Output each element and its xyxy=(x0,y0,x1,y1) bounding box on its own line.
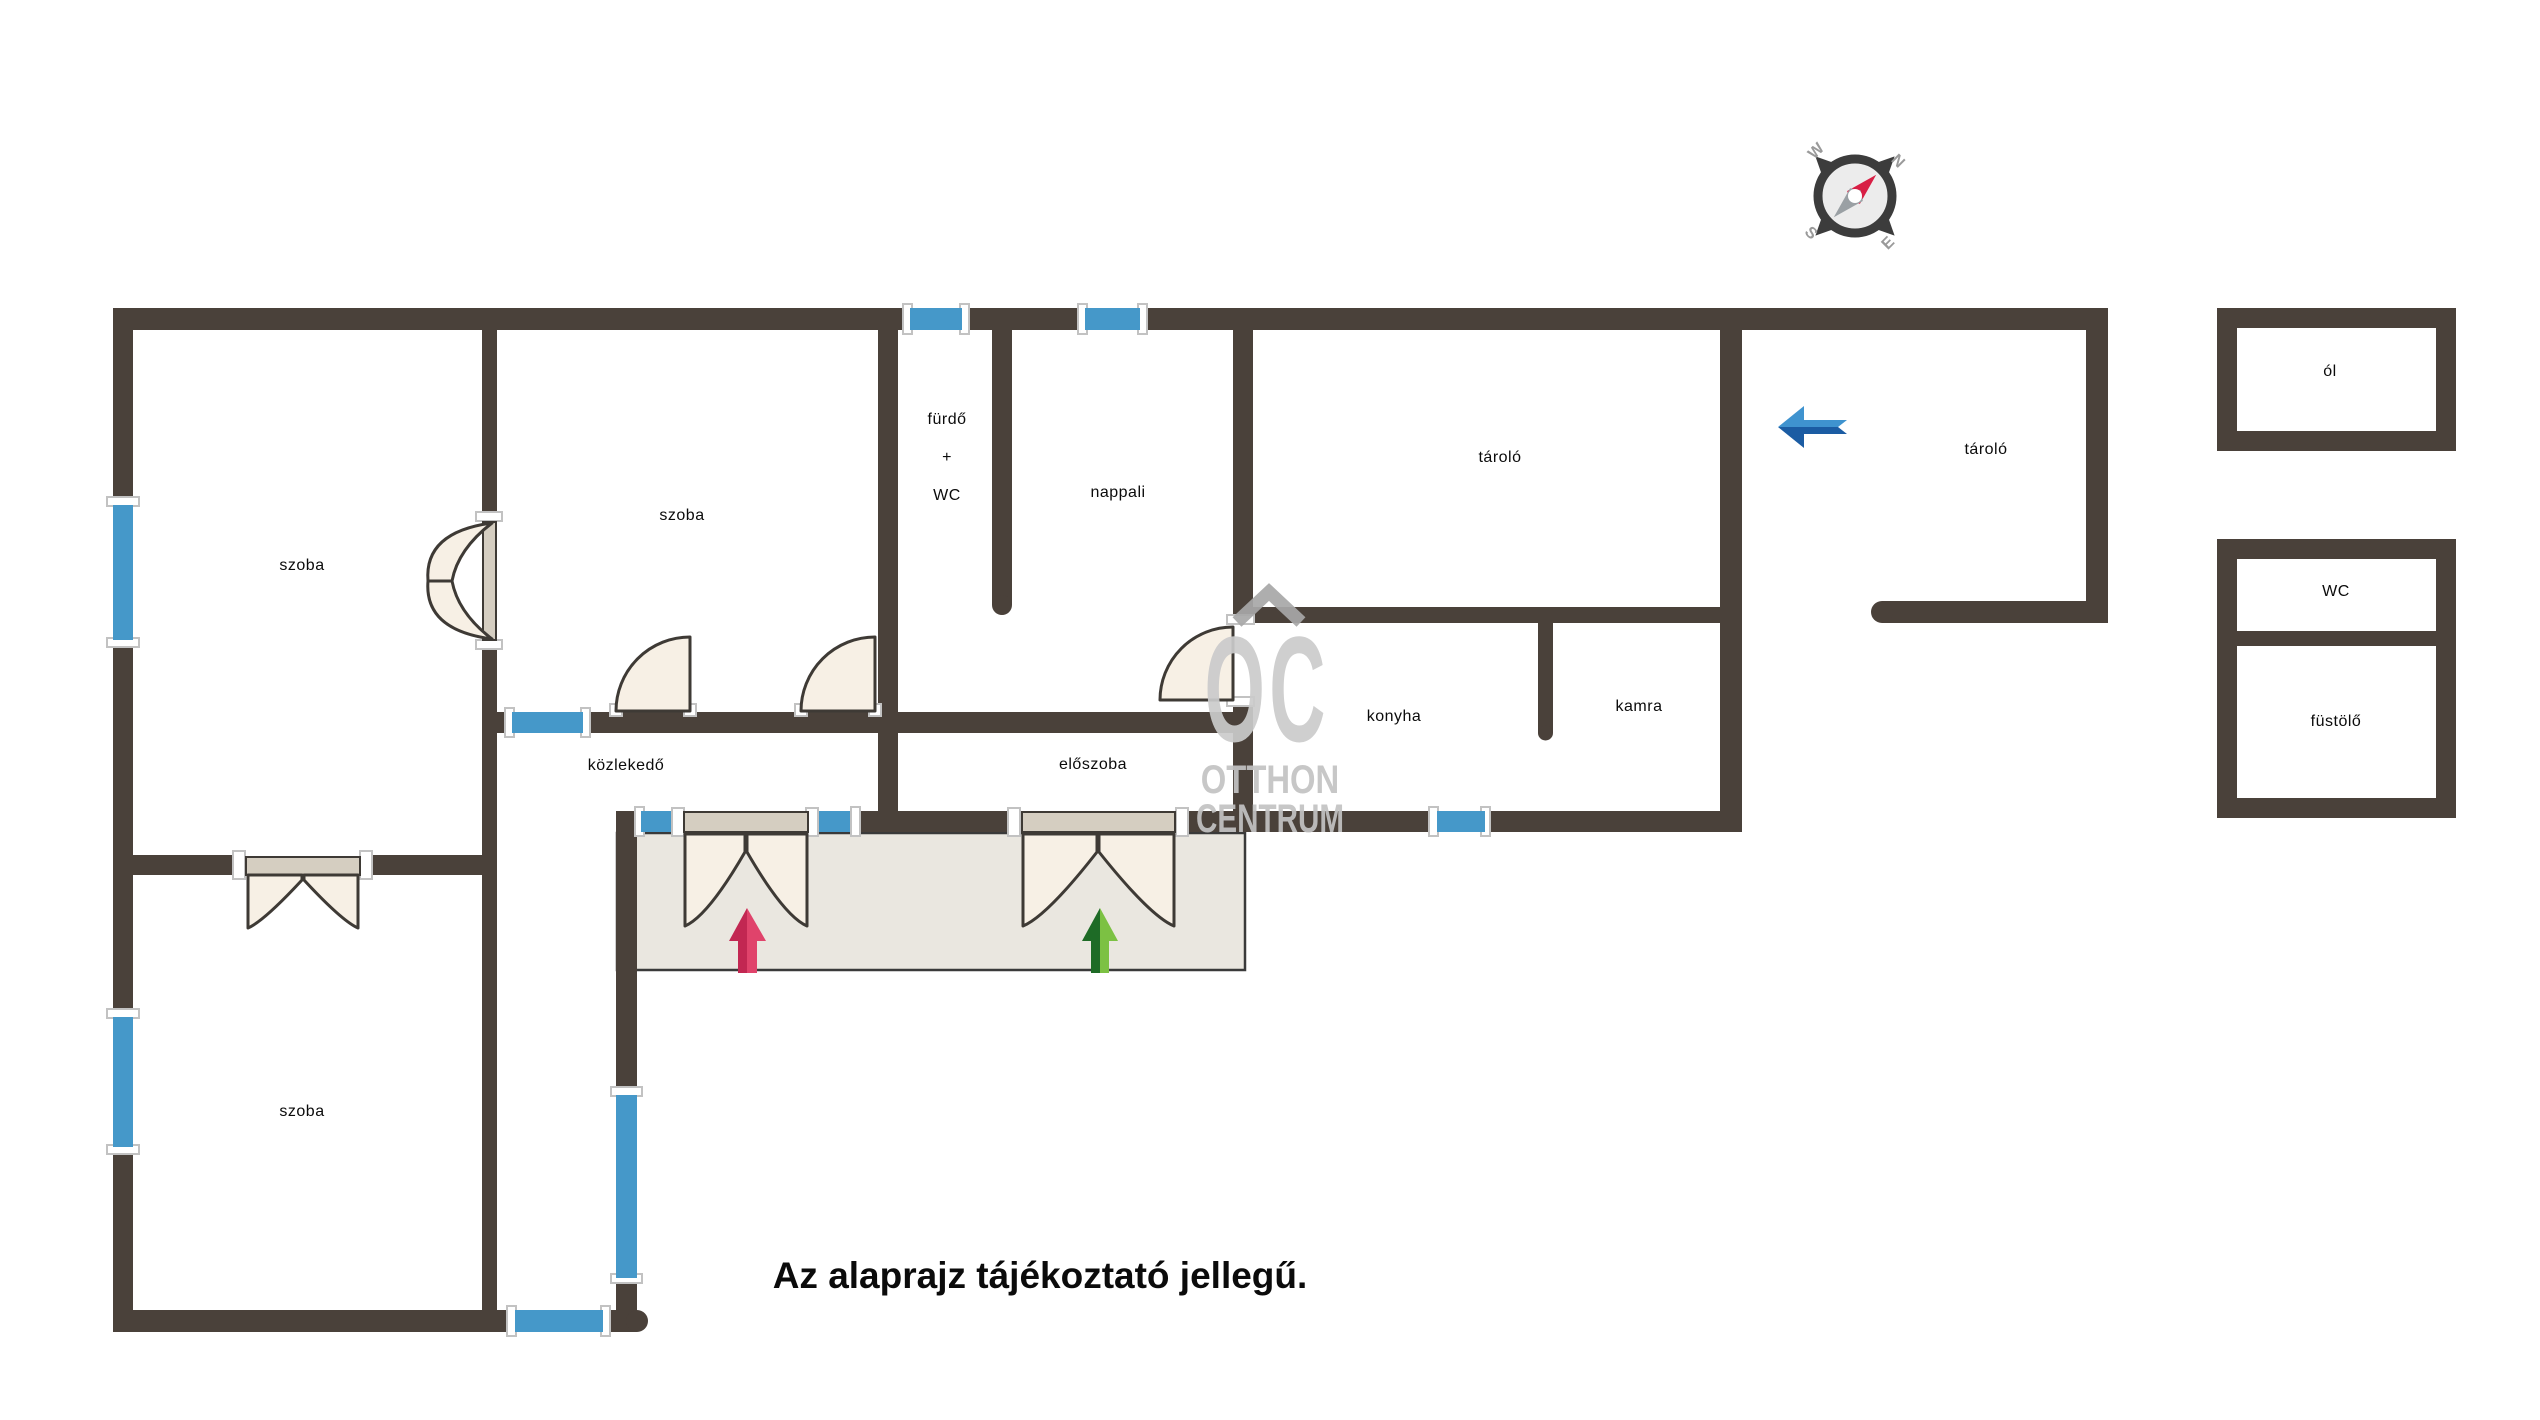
wall-szoba2-furdo xyxy=(878,330,898,832)
door-szoba3-leaf-right xyxy=(304,875,358,928)
door-szoba2-east xyxy=(801,637,875,711)
room-label-kozlekedo: közlekedő xyxy=(588,757,665,775)
wall-left-outer xyxy=(113,308,133,1332)
wall-tarolo-divider xyxy=(1720,330,1742,832)
door-szoba2-west xyxy=(616,637,690,711)
wall-konyha-bottom-b xyxy=(1485,811,1742,832)
tarolo-entrance-arrow-blue-icon xyxy=(1778,406,1847,448)
compass-east-label: E xyxy=(1879,233,1899,253)
furdo-line2: + xyxy=(928,439,967,477)
window-konyha-south xyxy=(1437,811,1485,832)
watermark-centrum: CENTRUM xyxy=(1196,797,1344,841)
furdo-line3: WC xyxy=(928,477,967,515)
watermark-oc: OC xyxy=(1204,607,1329,774)
door-szoba3-frame xyxy=(246,857,360,875)
room-label-tarolo-1: tároló xyxy=(1478,449,1521,467)
wall-szoba-divider-upper xyxy=(482,330,497,520)
wall-strip-upper xyxy=(616,811,637,1095)
window-kozlekedo xyxy=(512,712,583,733)
room-label-konyha: konyha xyxy=(1367,708,1422,726)
room-label-fustolo: füstölő xyxy=(2311,713,2362,731)
room-label-eloszoba: előszoba xyxy=(1059,756,1127,774)
wall-nappali-tarolo xyxy=(1233,330,1253,623)
room-label-nappali: nappali xyxy=(1090,484,1145,502)
wall-konyha-kamra-round-end xyxy=(1538,726,1553,741)
room-label-furdo-wc: fürdő + WC xyxy=(928,401,967,515)
wall-tarolo2-bottom xyxy=(1882,601,2108,623)
room-label-szoba-top-left: szoba xyxy=(279,557,324,575)
room-label-tarolo-2: tároló xyxy=(1964,441,2007,459)
compass-north-label: N xyxy=(1888,151,1908,171)
wall-porch-b xyxy=(855,811,1008,832)
compass-rose-icon: W N S E xyxy=(1776,117,1934,275)
furdo-line1: fürdő xyxy=(928,401,967,439)
wall-bottom-round-end xyxy=(626,1310,648,1332)
compass-south-label: S xyxy=(1801,224,1821,244)
wall-furdo-nappali xyxy=(992,330,1012,605)
room-label-ol: ól xyxy=(2323,363,2336,381)
window-south xyxy=(515,1310,603,1332)
window-nappali-north xyxy=(1085,308,1140,330)
wall-furdo-nappali-round-end xyxy=(992,595,1012,615)
wall-tarolo2-right xyxy=(2086,308,2108,623)
door-entrance2-frame xyxy=(1022,812,1175,832)
window-szoba1-west xyxy=(113,505,133,640)
room-label-kamra: kamra xyxy=(1616,698,1663,716)
room-label-szoba-bottom: szoba xyxy=(279,1103,324,1121)
door-entrance1-frame xyxy=(684,812,808,832)
window-furdo-north xyxy=(910,308,962,330)
wall-szoba-divider-lower xyxy=(482,641,497,1310)
window-szoba3-west xyxy=(113,1017,133,1147)
outbuilding-boxes xyxy=(2227,318,2446,808)
wall-szoba1-bottom-a xyxy=(113,855,243,875)
room-label-wc: WC xyxy=(2322,583,2350,601)
window-strip-east xyxy=(616,1095,637,1278)
disclaimer-text: Az alaprajz tájékoztató jellegű. xyxy=(773,1255,1308,1297)
wall-tarolo2-round-end xyxy=(1871,601,1893,623)
watermark-logo: OC OTTHON CENTRUM xyxy=(1196,592,1344,841)
compass-west-label: W xyxy=(1805,139,1828,162)
wall-konyha-kamra xyxy=(1538,623,1553,733)
wall-szoba1-bottom-b xyxy=(363,855,497,875)
floorplan-drawing: W N S E OC OTTHON CENTRUM xyxy=(0,0,2540,1420)
room-label-szoba-middle: szoba xyxy=(659,507,704,525)
floorplan-page: W N S E OC OTTHON CENTRUM szoba szoba sz… xyxy=(0,0,2540,1420)
outbuilding-divider-wall xyxy=(2237,631,2436,646)
watermark-otthon: OTTHON xyxy=(1201,757,1339,802)
door-szoba1-frame xyxy=(483,522,496,640)
door-szoba3-leaf-left xyxy=(248,875,302,928)
